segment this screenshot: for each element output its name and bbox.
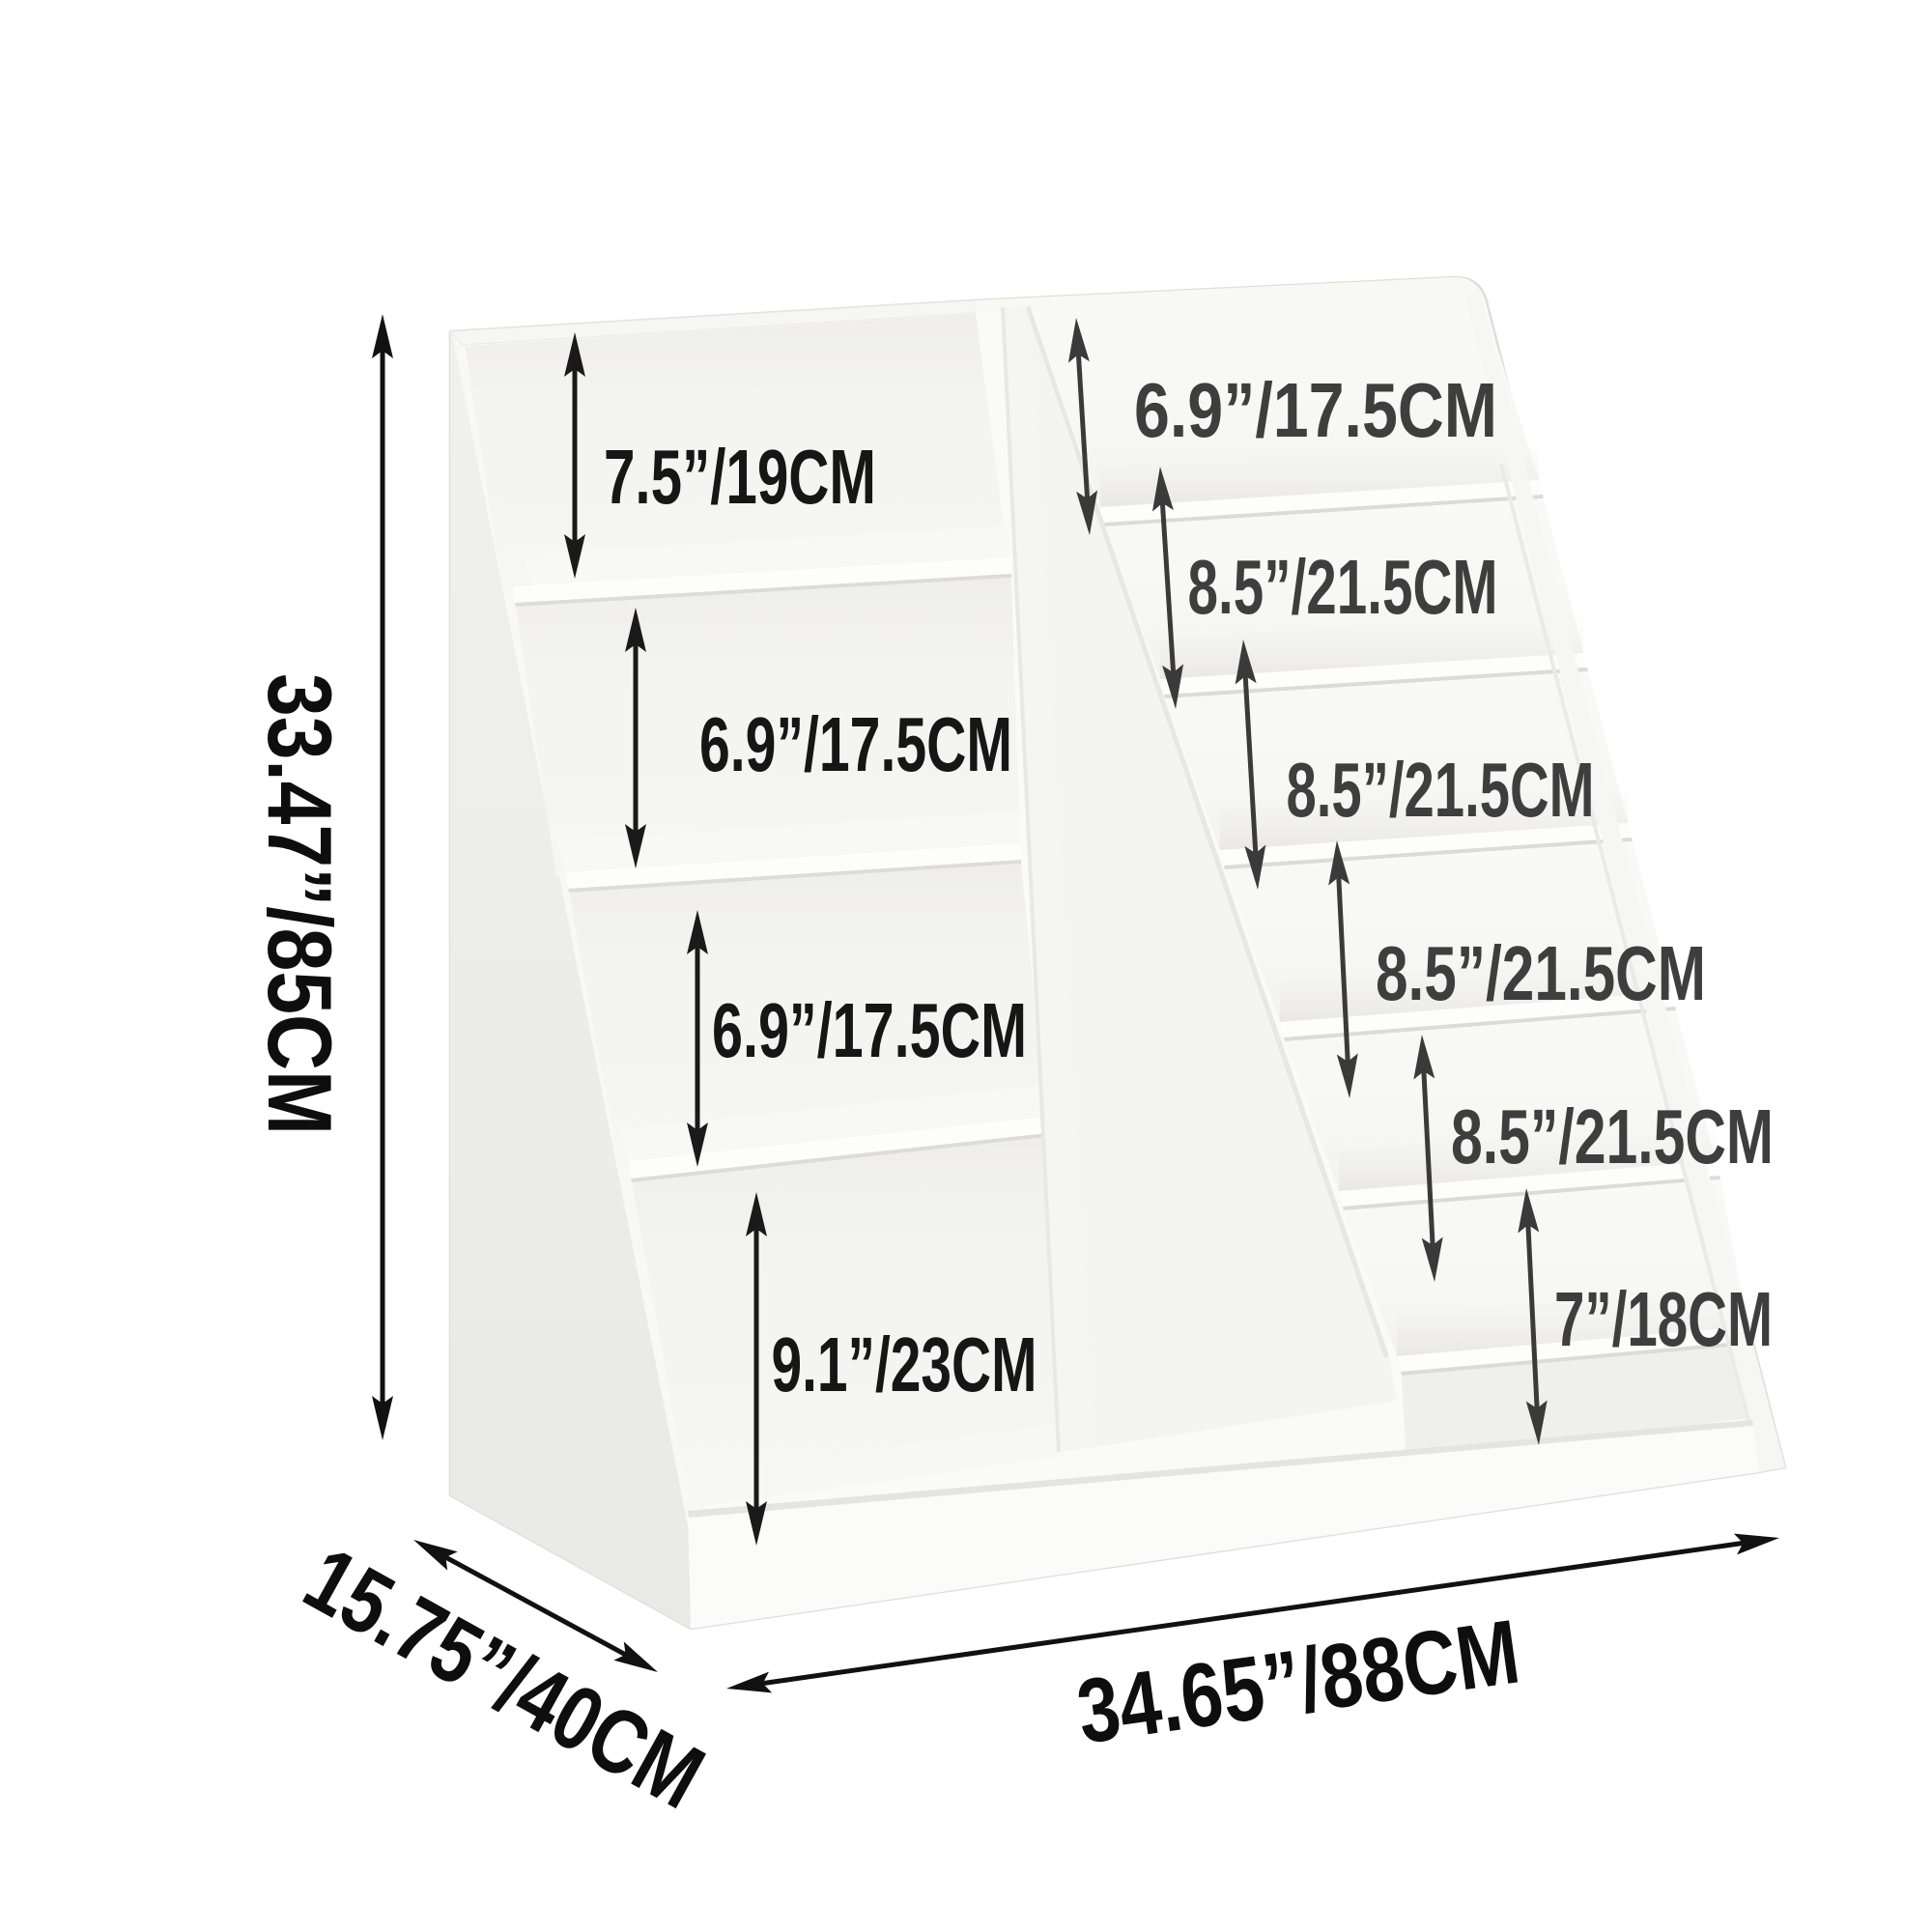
svg-text:8.5”/21.5CM: 8.5”/21.5CM — [1451, 1094, 1774, 1179]
svg-text:7.5”/19CM: 7.5”/19CM — [604, 434, 876, 520]
svg-text:8.5”/21.5CM: 8.5”/21.5CM — [1376, 930, 1706, 1016]
svg-text:33.47”/85CM: 33.47”/85CM — [249, 673, 351, 1135]
svg-text:6.9”/17.5CM: 6.9”/17.5CM — [699, 701, 1012, 787]
svg-text:6.9”/17.5CM: 6.9”/17.5CM — [712, 987, 1027, 1073]
svg-text:9.1”/23CM: 9.1”/23CM — [772, 1321, 1037, 1407]
svg-text:8.5”/21.5CM: 8.5”/21.5CM — [1188, 544, 1498, 630]
svg-text:6.9”/17.5CM: 6.9”/17.5CM — [1134, 367, 1497, 453]
svg-text:8.5”/21.5CM: 8.5”/21.5CM — [1287, 747, 1595, 833]
svg-text:7”/18CM: 7”/18CM — [1554, 1276, 1773, 1362]
